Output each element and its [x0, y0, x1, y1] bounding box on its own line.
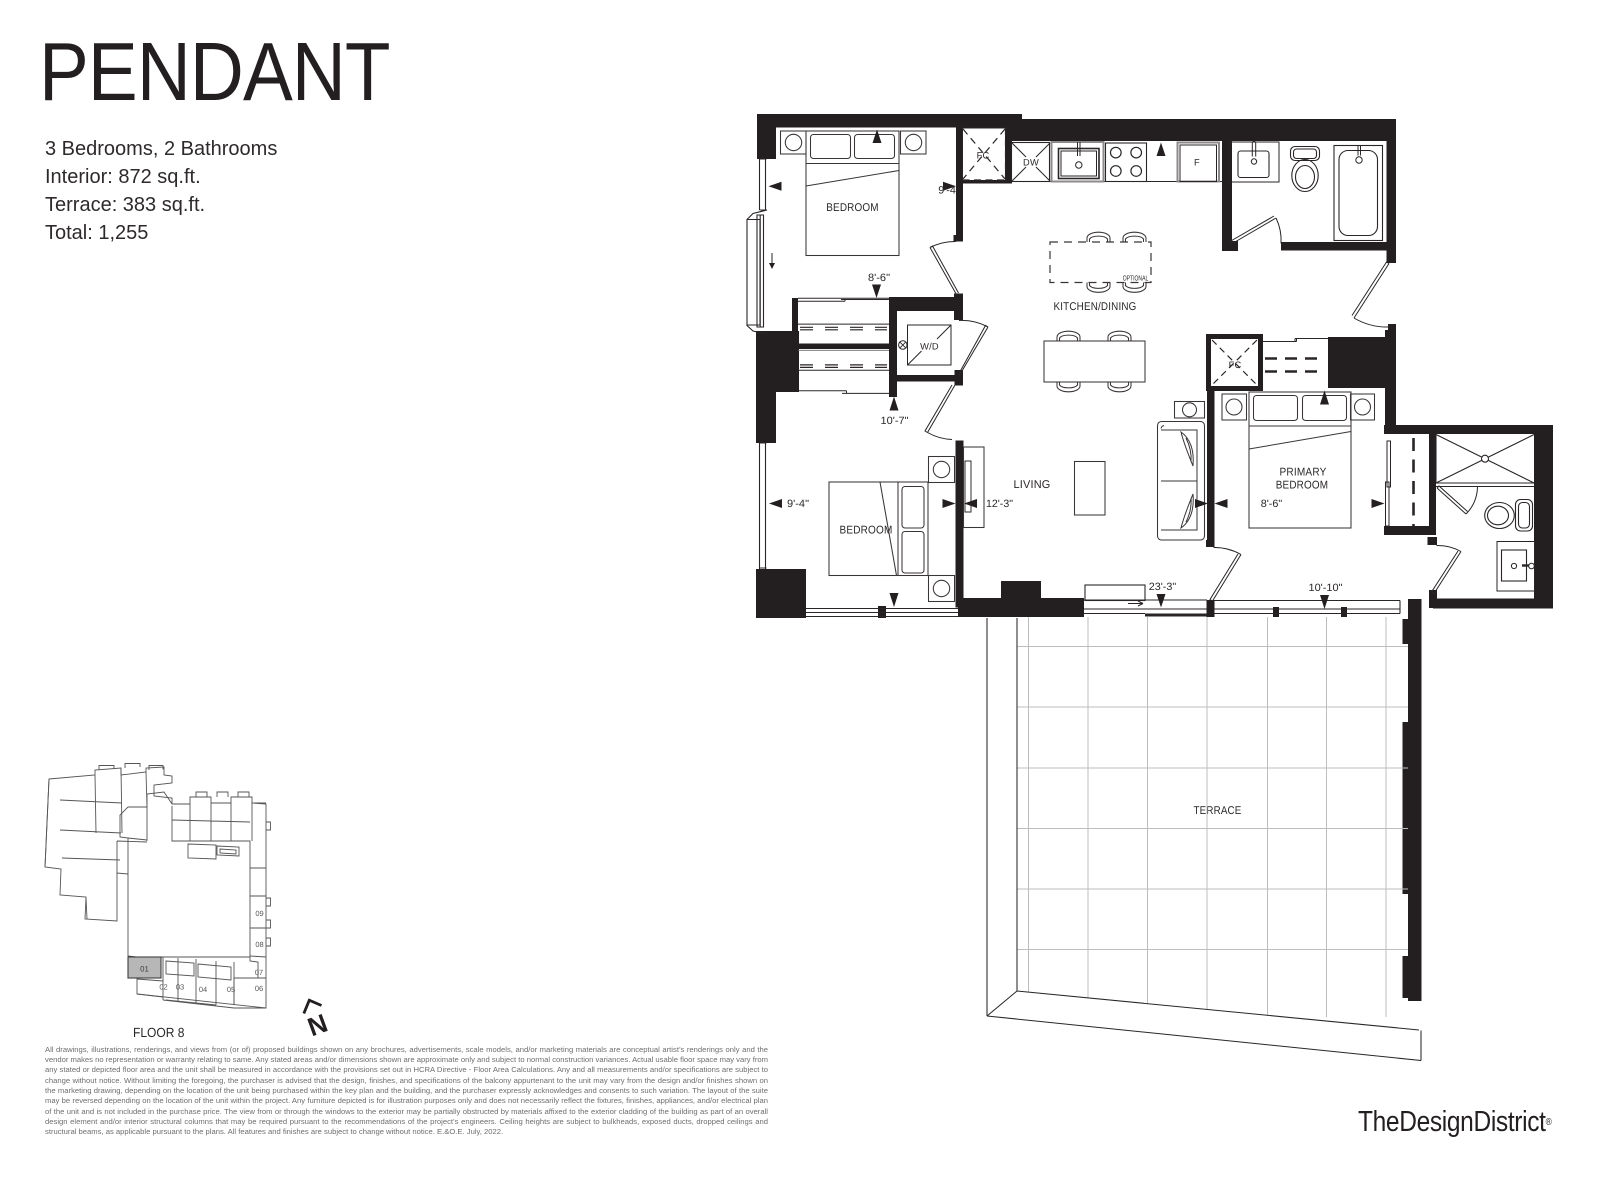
svg-text:9'-4": 9'-4" — [787, 498, 809, 510]
svg-text:07: 07 — [255, 968, 263, 977]
svg-text:03: 03 — [176, 983, 184, 992]
svg-text:OPTIONAL: OPTIONAL — [1123, 274, 1149, 283]
svg-text:10'-7": 10'-7" — [881, 415, 909, 427]
svg-text:23'-3": 23'-3" — [1149, 581, 1177, 593]
svg-text:8'-6": 8'-6" — [868, 272, 890, 284]
svg-text:06: 06 — [255, 984, 263, 993]
svg-text:F: F — [1194, 158, 1200, 168]
svg-text:01: 01 — [140, 965, 149, 974]
svg-text:N: N — [304, 1008, 332, 1043]
svg-text:10'-10": 10'-10" — [1309, 582, 1343, 594]
svg-text:FC: FC — [977, 151, 990, 161]
svg-text:BEDROOM: BEDROOM — [826, 202, 879, 214]
svg-text:DW: DW — [1023, 158, 1039, 168]
svg-text:BEDROOM: BEDROOM — [1276, 480, 1329, 492]
svg-text:8'-6": 8'-6" — [1261, 498, 1283, 510]
svg-text:FC: FC — [1229, 360, 1242, 370]
svg-text:W/D: W/D — [920, 342, 939, 352]
svg-text:FLOOR 8: FLOOR 8 — [133, 1025, 185, 1040]
svg-text:PRIMARY: PRIMARY — [1280, 467, 1327, 479]
svg-text:04: 04 — [199, 985, 207, 994]
svg-text:LIVING: LIVING — [1014, 479, 1051, 491]
svg-text:12'-3": 12'-3" — [986, 498, 1013, 510]
svg-text:05: 05 — [227, 985, 235, 994]
svg-text:TERRACE: TERRACE — [1194, 805, 1242, 817]
svg-text:KITCHEN/DINING: KITCHEN/DINING — [1054, 301, 1137, 313]
svg-text:08: 08 — [255, 940, 263, 949]
svg-text:09: 09 — [255, 909, 263, 918]
svg-text:BEDROOM: BEDROOM — [840, 525, 893, 537]
svg-text:9'-4": 9'-4" — [938, 185, 960, 197]
svg-text:02: 02 — [159, 983, 167, 992]
